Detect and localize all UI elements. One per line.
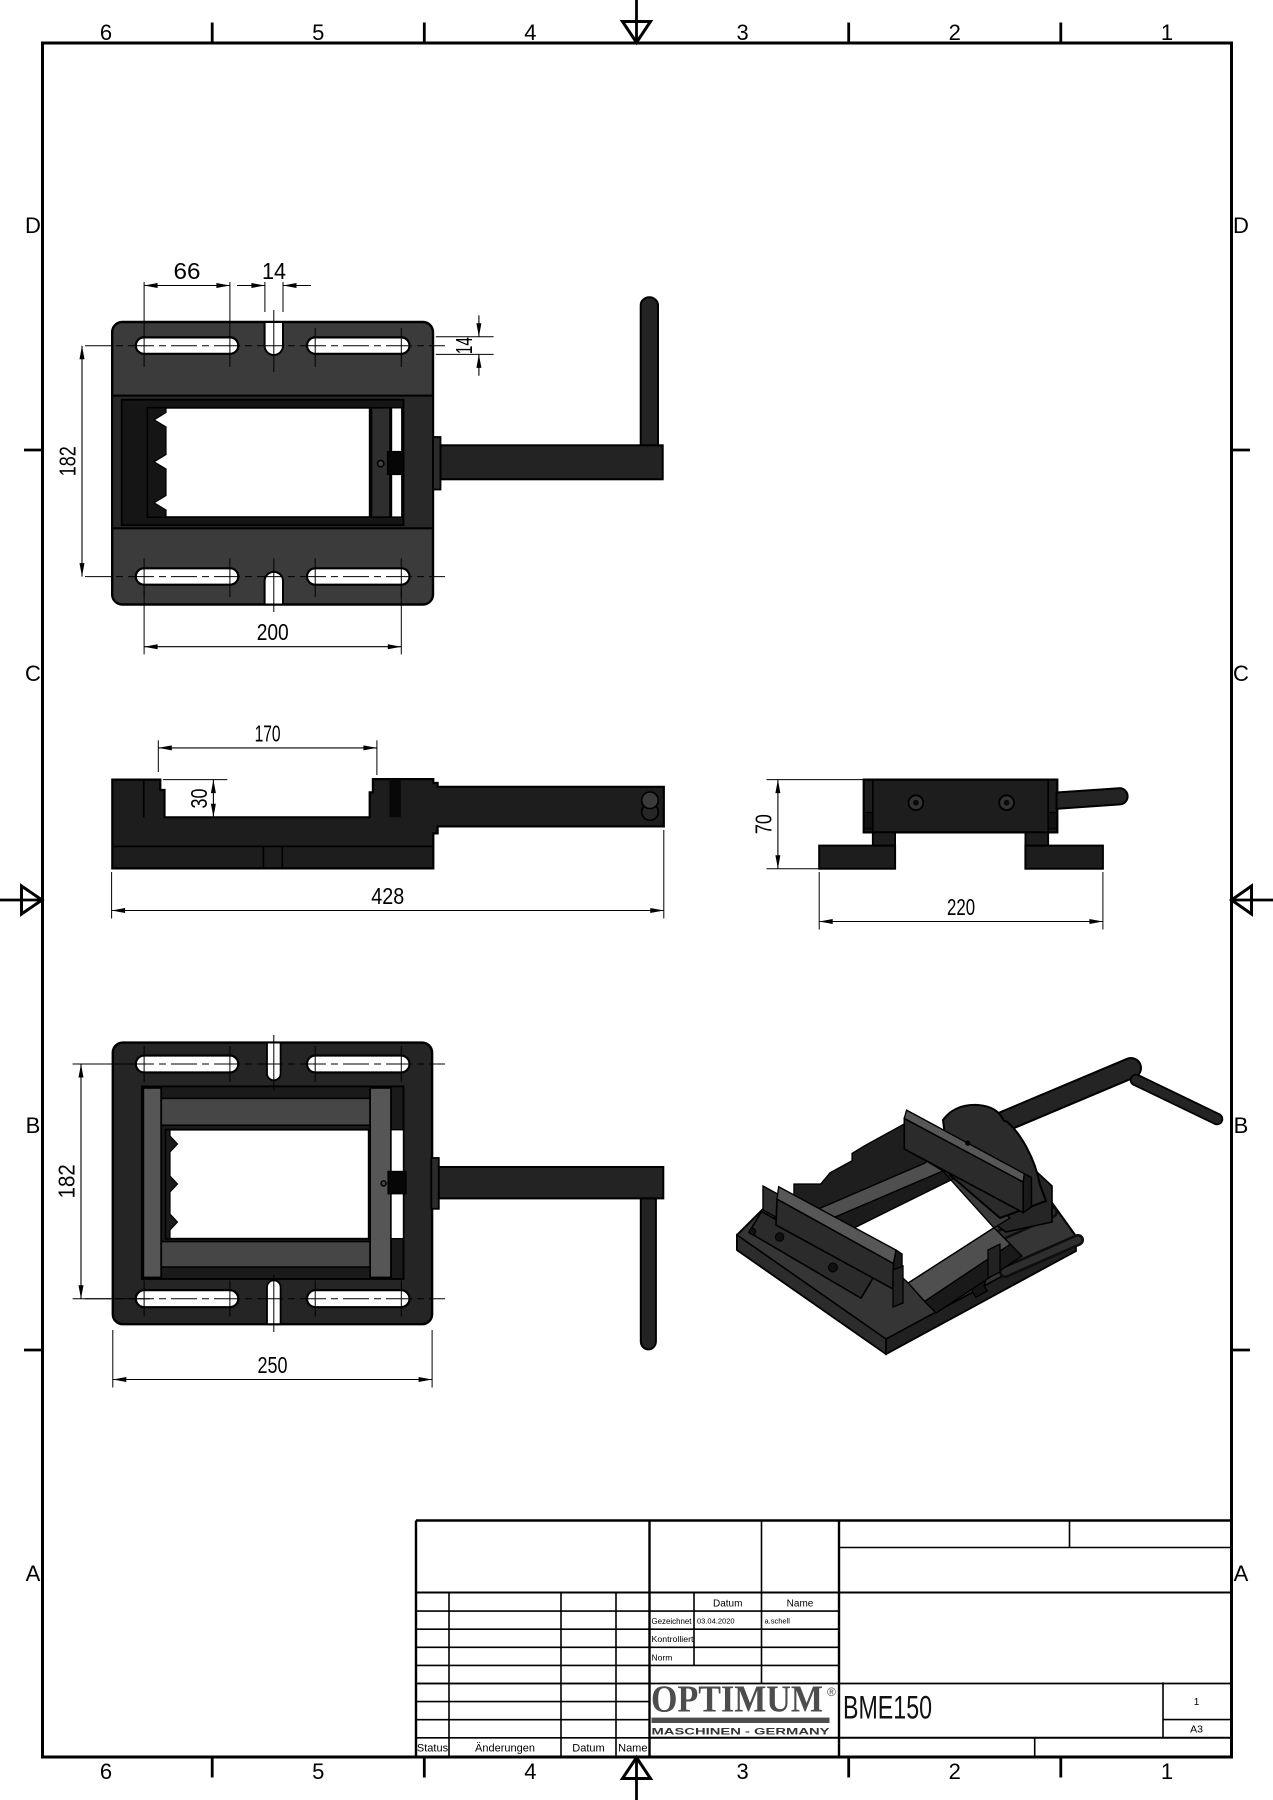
- svg-text:OPTIMUM: OPTIMUM: [651, 1679, 823, 1721]
- svg-text:Datum: Datum: [572, 1743, 604, 1755]
- svg-text:A: A: [1234, 1561, 1249, 1586]
- svg-text:1: 1: [1194, 1697, 1200, 1708]
- svg-text:A: A: [26, 1561, 41, 1586]
- svg-text:C: C: [25, 661, 41, 686]
- svg-text:5: 5: [312, 1759, 324, 1784]
- svg-text:Name: Name: [787, 1599, 814, 1610]
- svg-text:Name: Name: [618, 1743, 647, 1755]
- svg-text:70: 70: [750, 814, 776, 834]
- svg-text:Status: Status: [417, 1743, 449, 1755]
- svg-text:1: 1: [1161, 20, 1173, 45]
- svg-text:B: B: [26, 1113, 41, 1138]
- svg-text:BME150: BME150: [843, 1690, 932, 1726]
- svg-text:3: 3: [736, 1759, 748, 1784]
- svg-text:D: D: [1233, 213, 1249, 238]
- svg-text:182: 182: [55, 446, 81, 476]
- svg-text:182: 182: [54, 1164, 80, 1198]
- svg-text:D: D: [25, 213, 41, 238]
- svg-text:Kontrolliert: Kontrolliert: [652, 1634, 695, 1644]
- svg-text:Norm: Norm: [652, 1653, 673, 1663]
- svg-text:6: 6: [100, 1759, 112, 1784]
- svg-text:®: ®: [827, 1685, 836, 1699]
- svg-text:Datum: Datum: [713, 1599, 742, 1610]
- svg-text:A3: A3: [1190, 1724, 1203, 1736]
- svg-text:C: C: [1233, 661, 1249, 686]
- svg-text:30: 30: [186, 788, 212, 808]
- svg-text:2: 2: [949, 20, 961, 45]
- svg-text:170: 170: [255, 720, 281, 746]
- svg-text:200: 200: [257, 619, 289, 645]
- svg-text:3: 3: [736, 20, 748, 45]
- svg-text:250: 250: [257, 1352, 287, 1378]
- svg-text:6: 6: [100, 20, 112, 45]
- svg-text:Gezeichnet: Gezeichnet: [652, 1616, 693, 1626]
- svg-text:4: 4: [524, 20, 536, 45]
- svg-text:2: 2: [949, 1759, 961, 1784]
- svg-text:4: 4: [524, 1759, 536, 1784]
- svg-text:428: 428: [371, 883, 404, 909]
- svg-text:14: 14: [451, 337, 477, 354]
- svg-text:5: 5: [312, 20, 324, 45]
- svg-text:MASCHINEN - GERMANY: MASCHINEN - GERMANY: [652, 1727, 831, 1738]
- svg-text:a.schell: a.schell: [765, 1617, 791, 1626]
- svg-text:Änderungen: Änderungen: [475, 1743, 535, 1755]
- svg-text:B: B: [1234, 1113, 1249, 1138]
- svg-text:66: 66: [174, 258, 201, 284]
- svg-text:220: 220: [947, 894, 975, 920]
- svg-text:1: 1: [1161, 1759, 1173, 1784]
- svg-text:14: 14: [262, 258, 286, 284]
- svg-text:03.04.2020: 03.04.2020: [697, 1617, 735, 1626]
